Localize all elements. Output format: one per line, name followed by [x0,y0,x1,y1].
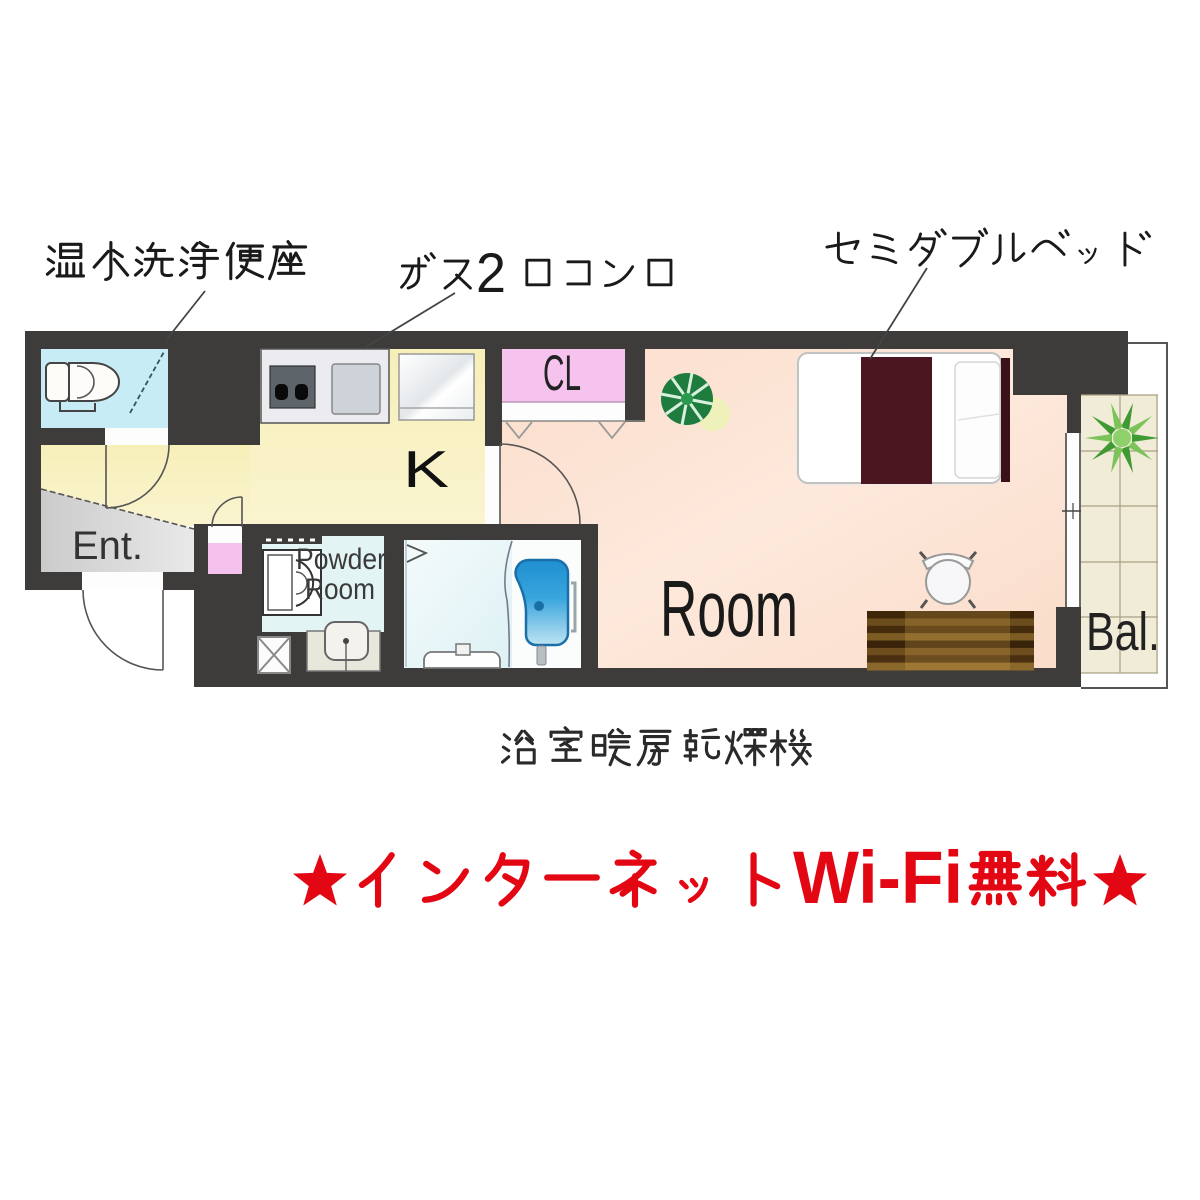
svg-text:Bal.: Bal. [1086,602,1160,662]
svg-text:Wi-Fi: Wi-Fi [793,836,963,919]
svg-text:CL: CL [543,345,581,401]
svg-text:Ent.: Ent. [72,524,143,568]
svg-text:Powder: Powder [296,543,386,576]
svg-text:Room: Room [660,564,798,653]
svg-text:K: K [403,441,449,499]
svg-text:Room: Room [305,573,375,606]
svg-text:2: 2 [476,241,506,304]
